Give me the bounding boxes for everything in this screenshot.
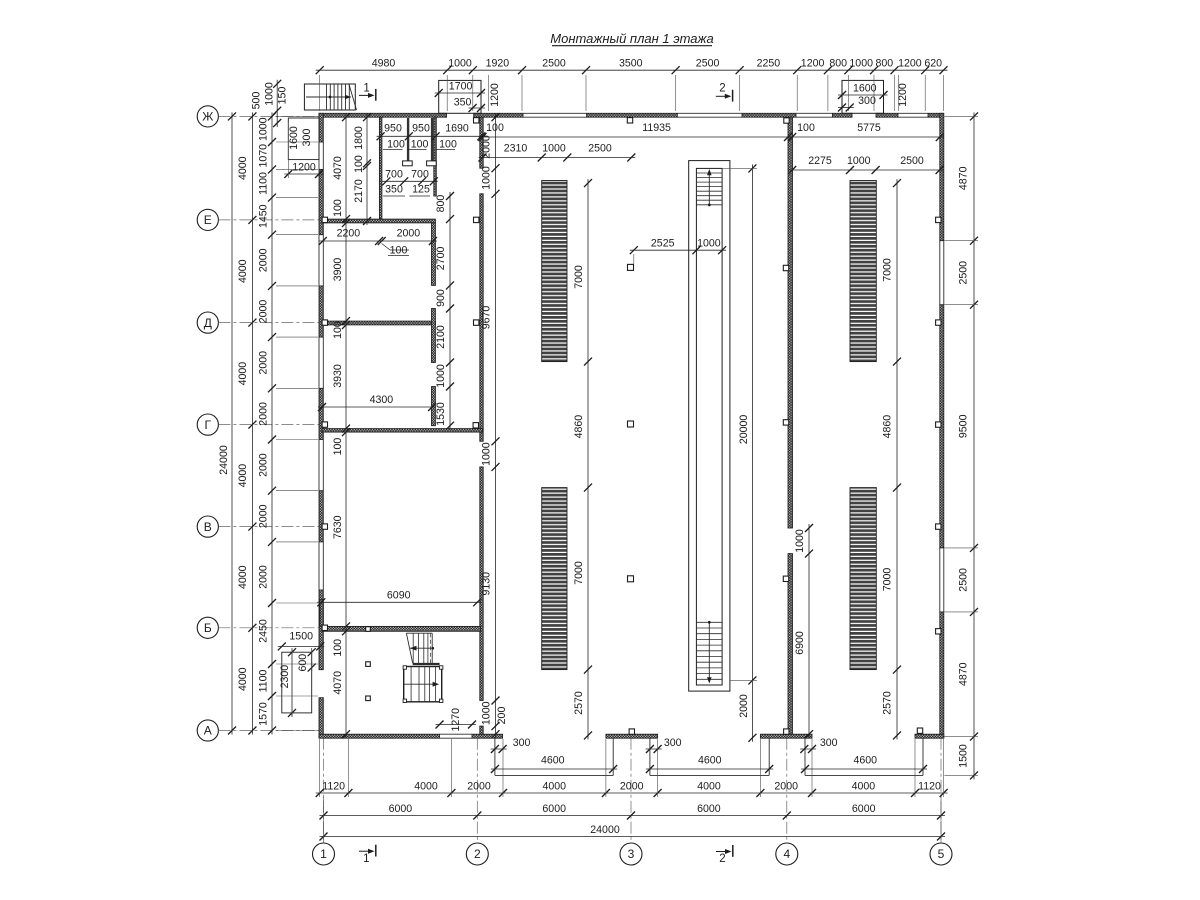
svg-text:6000: 6000 xyxy=(389,803,413,815)
svg-text:9500: 9500 xyxy=(958,414,970,438)
svg-text:1700: 1700 xyxy=(449,81,473,93)
svg-text:1270: 1270 xyxy=(450,708,462,732)
svg-text:2570: 2570 xyxy=(881,691,893,715)
svg-text:7630: 7630 xyxy=(332,515,344,539)
svg-text:4860: 4860 xyxy=(881,415,893,439)
svg-text:7000: 7000 xyxy=(573,561,585,585)
svg-text:1100: 1100 xyxy=(257,172,269,195)
svg-text:1120: 1120 xyxy=(918,780,941,792)
svg-text:300: 300 xyxy=(820,737,838,749)
svg-text:2300: 2300 xyxy=(279,665,291,689)
svg-text:150: 150 xyxy=(277,87,289,105)
svg-text:Д: Д xyxy=(204,316,212,330)
svg-text:1070: 1070 xyxy=(257,144,269,168)
svg-text:7000: 7000 xyxy=(881,258,893,282)
svg-text:2500: 2500 xyxy=(542,58,566,70)
svg-text:1000: 1000 xyxy=(448,58,472,70)
svg-text:100: 100 xyxy=(439,139,457,151)
svg-text:800: 800 xyxy=(829,58,847,70)
svg-text:1600: 1600 xyxy=(853,83,877,95)
svg-text:2000: 2000 xyxy=(257,565,269,589)
svg-text:20000: 20000 xyxy=(738,415,750,445)
svg-text:100: 100 xyxy=(387,139,405,151)
svg-text:100: 100 xyxy=(486,122,504,134)
svg-text:2570: 2570 xyxy=(573,691,585,715)
svg-text:100: 100 xyxy=(353,155,365,173)
svg-text:2000: 2000 xyxy=(257,402,269,426)
svg-text:800: 800 xyxy=(875,58,893,70)
svg-text:300: 300 xyxy=(858,95,876,107)
svg-text:2000: 2000 xyxy=(774,780,798,792)
svg-text:500: 500 xyxy=(251,92,263,110)
svg-text:3930: 3930 xyxy=(332,364,344,388)
svg-text:2000: 2000 xyxy=(481,135,493,159)
svg-text:5: 5 xyxy=(938,847,945,861)
svg-text:5775: 5775 xyxy=(857,122,881,134)
svg-text:1000: 1000 xyxy=(849,58,873,70)
svg-text:350: 350 xyxy=(454,97,472,109)
svg-text:1530: 1530 xyxy=(435,402,447,426)
svg-text:4980: 4980 xyxy=(372,58,396,70)
svg-text:1120: 1120 xyxy=(322,780,345,792)
svg-text:4600: 4600 xyxy=(541,755,565,767)
svg-text:24000: 24000 xyxy=(590,824,620,836)
svg-text:2000: 2000 xyxy=(257,351,269,375)
svg-text:1000: 1000 xyxy=(697,237,721,249)
svg-text:6000: 6000 xyxy=(697,803,721,815)
svg-text:1: 1 xyxy=(363,83,369,95)
svg-text:4000: 4000 xyxy=(237,464,249,488)
svg-text:4000: 4000 xyxy=(414,780,438,792)
svg-text:2000: 2000 xyxy=(397,228,421,240)
svg-text:1000: 1000 xyxy=(542,143,566,155)
svg-text:1600: 1600 xyxy=(288,126,300,150)
svg-text:100: 100 xyxy=(411,139,429,151)
svg-text:9670: 9670 xyxy=(481,306,493,330)
svg-text:900: 900 xyxy=(435,289,447,307)
svg-text:Монтажный план 1 этажа: Монтажный план 1 этажа xyxy=(550,31,713,46)
svg-text:4870: 4870 xyxy=(958,166,970,190)
svg-text:2100: 2100 xyxy=(435,325,447,349)
svg-text:4070: 4070 xyxy=(332,156,344,180)
svg-text:4000: 4000 xyxy=(237,565,249,589)
svg-text:1570: 1570 xyxy=(257,702,269,726)
svg-text:100: 100 xyxy=(332,321,344,339)
svg-text:Ж: Ж xyxy=(202,110,213,124)
svg-text:1000: 1000 xyxy=(794,529,806,553)
svg-text:В: В xyxy=(204,520,212,534)
svg-text:2500: 2500 xyxy=(958,261,970,285)
svg-text:100: 100 xyxy=(332,199,344,217)
svg-text:4000: 4000 xyxy=(543,780,567,792)
svg-text:4000: 4000 xyxy=(697,780,721,792)
svg-text:1000: 1000 xyxy=(847,155,871,167)
svg-text:А: А xyxy=(204,724,212,738)
svg-text:2450: 2450 xyxy=(257,619,269,643)
svg-text:2000: 2000 xyxy=(467,780,491,792)
svg-text:3500: 3500 xyxy=(619,58,643,70)
svg-text:1000: 1000 xyxy=(481,442,493,466)
svg-text:1500: 1500 xyxy=(958,744,970,768)
svg-text:1690: 1690 xyxy=(445,123,469,135)
svg-text:1200: 1200 xyxy=(292,161,316,173)
svg-text:6090: 6090 xyxy=(387,590,411,602)
svg-text:Б: Б xyxy=(204,621,212,635)
svg-text:350: 350 xyxy=(385,184,403,196)
svg-text:4070: 4070 xyxy=(332,671,344,695)
svg-text:2500: 2500 xyxy=(588,143,612,155)
svg-text:300: 300 xyxy=(513,737,531,749)
svg-text:2700: 2700 xyxy=(435,247,447,271)
svg-text:2500: 2500 xyxy=(958,568,970,592)
svg-text:2200: 2200 xyxy=(337,228,361,240)
svg-text:9130: 9130 xyxy=(481,572,493,596)
svg-text:4600: 4600 xyxy=(854,755,878,767)
svg-text:6000: 6000 xyxy=(852,803,876,815)
svg-text:2: 2 xyxy=(719,83,725,95)
svg-text:1200: 1200 xyxy=(898,58,922,70)
svg-text:4300: 4300 xyxy=(370,394,394,406)
svg-text:950: 950 xyxy=(412,123,430,135)
svg-text:620: 620 xyxy=(924,58,942,70)
svg-text:Г: Г xyxy=(205,418,212,432)
svg-text:1000: 1000 xyxy=(481,166,493,190)
svg-text:300: 300 xyxy=(301,129,313,147)
svg-text:1920: 1920 xyxy=(486,58,510,70)
svg-text:6900: 6900 xyxy=(794,631,806,655)
svg-text:4000: 4000 xyxy=(237,667,249,691)
svg-text:1800: 1800 xyxy=(353,126,365,150)
svg-text:24000: 24000 xyxy=(218,445,230,475)
svg-text:1200: 1200 xyxy=(801,58,825,70)
svg-text:2000: 2000 xyxy=(257,504,269,528)
svg-text:4000: 4000 xyxy=(852,780,876,792)
svg-text:4870: 4870 xyxy=(958,662,970,686)
svg-text:4: 4 xyxy=(783,847,790,861)
svg-text:2000: 2000 xyxy=(257,248,269,272)
svg-text:4000: 4000 xyxy=(237,259,249,283)
svg-text:2000: 2000 xyxy=(738,694,750,718)
svg-text:1: 1 xyxy=(320,847,327,861)
svg-text:700: 700 xyxy=(385,168,403,180)
svg-text:4600: 4600 xyxy=(698,755,722,767)
svg-text:200: 200 xyxy=(496,707,508,725)
svg-text:1450: 1450 xyxy=(257,204,269,228)
svg-text:7000: 7000 xyxy=(881,568,893,592)
svg-text:1500: 1500 xyxy=(289,631,313,643)
svg-text:11935: 11935 xyxy=(642,122,671,134)
svg-text:800: 800 xyxy=(435,195,447,213)
svg-text:1200: 1200 xyxy=(489,83,501,107)
svg-text:1000: 1000 xyxy=(435,364,447,388)
svg-text:2000: 2000 xyxy=(620,780,644,792)
svg-text:300: 300 xyxy=(664,737,682,749)
svg-text:1100: 1100 xyxy=(257,670,269,693)
svg-text:1: 1 xyxy=(363,853,369,865)
svg-text:1000: 1000 xyxy=(257,117,269,141)
svg-text:2310: 2310 xyxy=(504,143,528,155)
svg-text:700: 700 xyxy=(411,168,429,180)
svg-text:7000: 7000 xyxy=(573,265,585,289)
svg-text:2: 2 xyxy=(474,847,481,861)
svg-text:125: 125 xyxy=(412,184,430,196)
svg-text:2525: 2525 xyxy=(651,237,675,249)
svg-text:100: 100 xyxy=(332,438,344,456)
svg-text:3900: 3900 xyxy=(332,258,344,282)
svg-text:Е: Е xyxy=(204,213,212,227)
svg-text:4860: 4860 xyxy=(573,415,585,439)
svg-text:100: 100 xyxy=(797,122,815,134)
svg-text:3: 3 xyxy=(628,847,635,861)
svg-text:2275: 2275 xyxy=(808,155,832,167)
svg-text:950: 950 xyxy=(384,123,402,135)
svg-text:1000: 1000 xyxy=(481,701,493,725)
svg-text:6000: 6000 xyxy=(542,803,566,815)
svg-text:2500: 2500 xyxy=(900,155,924,167)
svg-text:100: 100 xyxy=(332,639,344,657)
svg-text:600: 600 xyxy=(297,654,309,672)
svg-text:2250: 2250 xyxy=(757,58,781,70)
svg-text:2000: 2000 xyxy=(257,453,269,477)
svg-text:1000: 1000 xyxy=(263,82,275,106)
svg-text:4000: 4000 xyxy=(237,156,249,180)
svg-text:2170: 2170 xyxy=(353,179,365,203)
svg-text:2000: 2000 xyxy=(257,300,269,324)
svg-text:100: 100 xyxy=(390,245,408,257)
svg-text:2500: 2500 xyxy=(696,58,720,70)
svg-text:2: 2 xyxy=(719,853,725,865)
svg-text:4000: 4000 xyxy=(237,362,249,386)
